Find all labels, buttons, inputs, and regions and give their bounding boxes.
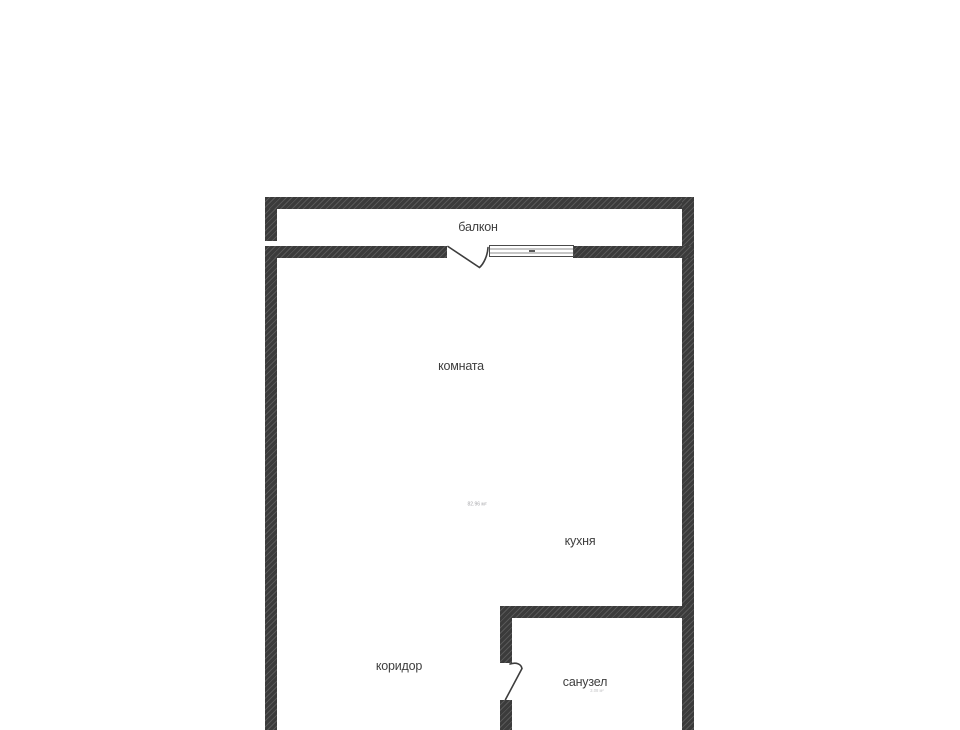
wall-right (682, 197, 694, 730)
wall-left (265, 258, 277, 730)
window-center-tick (529, 250, 535, 252)
wall-top (265, 197, 694, 209)
wall-balcony-divider-left (265, 246, 447, 258)
bathroom-door-swing (506, 663, 523, 699)
room-label-room: комната (438, 359, 484, 373)
balcony-door-swing (448, 247, 488, 268)
wall-bathroom-top (500, 606, 694, 618)
wall-balcony-divider-right (573, 246, 694, 258)
wall-bathroom-left-stub (500, 700, 512, 730)
wall-bathroom-left-upper (500, 606, 512, 663)
area-annotation-main: 82.96 м² (467, 501, 486, 507)
room-label-bathroom: санузел (563, 675, 607, 689)
floor-plan: балкон комната кухня коридор санузел 82.… (0, 0, 960, 730)
room-label-kitchen: кухня (565, 534, 596, 548)
wall-balcony-left (265, 209, 277, 241)
area-annotation-bathroom: 3.08 м² (590, 689, 604, 694)
balcony-window (489, 245, 574, 257)
room-label-corridor: коридор (376, 659, 422, 673)
room-label-balcony: балкон (458, 220, 497, 234)
